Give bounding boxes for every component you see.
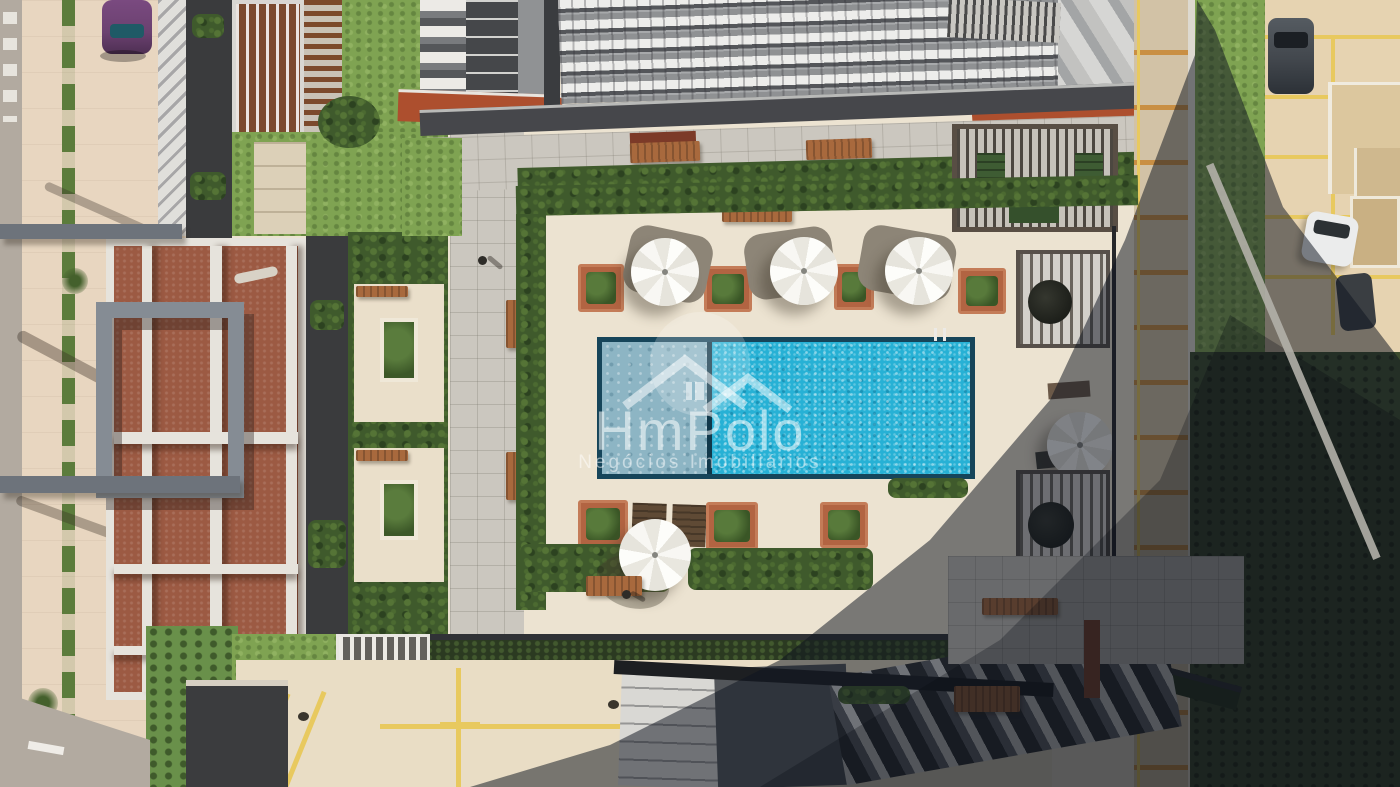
- left-road-markings: [3, 12, 17, 122]
- pool-ladder-rail: [934, 328, 937, 341]
- sidewalk-hedge-line: [62, 0, 75, 787]
- tower-window-column: [466, 0, 518, 94]
- deck-plants: [838, 686, 910, 704]
- car-shadow: [100, 50, 146, 62]
- lower-hedge: [688, 548, 873, 590]
- parking-line: [440, 722, 480, 727]
- walkway-bench: [630, 141, 701, 163]
- dark-car: [1268, 18, 1314, 94]
- patio-planter: [380, 318, 418, 382]
- aerial-photo: HmPolo Negócios Imobiliários: [0, 0, 1400, 787]
- tower-corner-slats: [947, 0, 1061, 43]
- walkway-bench: [806, 138, 873, 160]
- roof-beam-vertical: [286, 246, 297, 692]
- patio-square: [354, 448, 444, 582]
- drain-dot: [298, 712, 309, 721]
- pergola-round-table: [1028, 502, 1074, 548]
- deck-bench: [982, 598, 1058, 615]
- patio-bench: [356, 286, 408, 297]
- patio-umbrella: [770, 237, 838, 305]
- bottom-building-white-wall: [618, 668, 722, 787]
- parking-line-angled: [283, 691, 327, 787]
- patio-planter: [380, 480, 418, 540]
- bottom-hedge-wall: [344, 634, 1048, 660]
- charcoal-band-right-of-building: [306, 236, 350, 656]
- deck-bench: [954, 686, 1020, 712]
- watermark-tagline: Negócios Imobiliários: [520, 452, 880, 474]
- poolside-plants: [888, 478, 968, 498]
- pedestrian: [478, 256, 487, 265]
- brick-planter: [706, 502, 758, 550]
- poolside-pergola: [1016, 470, 1110, 568]
- patio-umbrella: [631, 238, 699, 306]
- garden-tree: [318, 96, 380, 148]
- drain-dot: [608, 700, 619, 709]
- palm-tree: [62, 268, 88, 294]
- white-car-windshield: [1313, 219, 1351, 239]
- patio-bench: [356, 450, 408, 461]
- wall-bush: [190, 172, 226, 200]
- brick-planter: [820, 502, 868, 548]
- wall-bush: [192, 14, 224, 38]
- power-line-bar: [0, 476, 240, 493]
- tower-balcony-stack: [420, 0, 466, 98]
- patio-square: [354, 284, 444, 422]
- brick-planter: [578, 500, 628, 548]
- pergola-round-table: [1028, 280, 1072, 324]
- patio-umbrella: [1047, 412, 1113, 478]
- topleft-pergola: [232, 0, 304, 138]
- gray-pergola-frame: [96, 302, 244, 498]
- top-lawn-patch: [402, 138, 462, 236]
- roof-pipe: [233, 266, 278, 285]
- wall-bush: [308, 520, 346, 568]
- poolside-pergola: [1016, 250, 1110, 348]
- pool-ladder-rail: [943, 328, 946, 341]
- white-fence-strip: [158, 0, 186, 236]
- stepping-pavers: [254, 142, 306, 234]
- vertical-planter: [1084, 620, 1100, 698]
- dark-car-windshield: [1274, 32, 1308, 48]
- wall-bush: [310, 300, 344, 330]
- brick-planter: [704, 266, 752, 312]
- power-line-bar: [0, 224, 182, 239]
- dark-car-2: [1335, 272, 1377, 331]
- brick-planter: [578, 264, 624, 312]
- lounger: [1047, 381, 1090, 400]
- roof-beam-horizontal: [114, 564, 298, 574]
- brick-planter: [958, 268, 1006, 314]
- purple-car-windshield: [110, 24, 144, 38]
- patio-umbrella: [885, 237, 953, 305]
- pool-ladder: [934, 328, 952, 342]
- white-car: [1300, 210, 1360, 268]
- driveway: [186, 686, 288, 787]
